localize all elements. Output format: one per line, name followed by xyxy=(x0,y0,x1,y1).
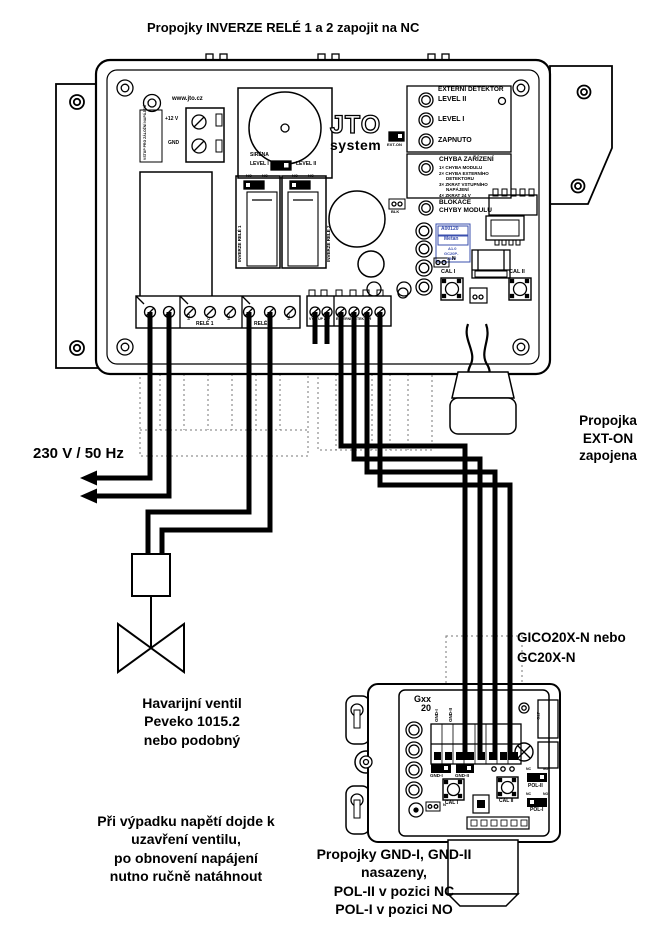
pol1-no-label: NO xyxy=(543,793,548,797)
siren-level1-label: LEVEL I xyxy=(250,162,269,167)
annotation-line: EXT-ON xyxy=(552,430,664,448)
status-panel-header: EXTERNÍ DETEKTOR xyxy=(438,87,504,94)
cal2-label: CAL II xyxy=(509,270,525,276)
vystup-terminal-label: VÝSTUP 24V xyxy=(309,318,330,322)
annotation-line: GICO20X-N nebo xyxy=(517,628,626,648)
detector-gnd2-label: GND-II xyxy=(455,774,469,779)
wiring-diagram: Propojky INVERZE RELÉ 1 a 2 zapojit na N… xyxy=(0,0,669,941)
ghost-outline-right xyxy=(318,364,432,450)
extdet-terminal-label: EXTERNÍ DETEKTOR xyxy=(336,318,371,322)
pol2-no-label: NO xyxy=(543,768,548,772)
board-url: www.jto.cz xyxy=(172,96,203,102)
annotation-line: Propojky GND-I, GND-II xyxy=(283,845,505,863)
annotation-line: nasazeny, xyxy=(283,863,505,881)
annotation-line: Peveko 1015.2 xyxy=(92,712,292,730)
rele1-pin-label: C xyxy=(207,317,211,320)
led-level2-label: LEVEL II xyxy=(438,96,466,103)
annotation-line: POL-I v pozici NO xyxy=(283,900,505,918)
sticker-line1: A00120 xyxy=(441,227,459,232)
backup-input-label: VSTUP PRO ZÁLOŽNÍ NAPÁJENÍ xyxy=(144,105,148,160)
fault-line: 4× ZKRAT 24 V xyxy=(439,194,471,199)
rele1-pin-label: NO xyxy=(187,314,191,320)
annotation-line: GC20X-N xyxy=(517,648,626,668)
pol2-nc-label: NC xyxy=(526,768,531,772)
annotation-line: Havarijní ventil xyxy=(92,694,292,712)
blk-label: BLK xyxy=(391,210,399,214)
annotation-line: nebo podobný xyxy=(92,731,292,749)
sticker-line2: Metan xyxy=(444,237,458,242)
pol2-label: POL-II xyxy=(528,784,543,789)
annotation-line: zapojena xyxy=(552,447,664,465)
relay1-no-label: NO xyxy=(246,174,252,178)
annotation-line: Propojka xyxy=(552,412,664,430)
detector-gnd2-vertical: GND-II xyxy=(449,708,454,722)
ghost-outline-left xyxy=(140,364,308,456)
block-label-1: BLOKACE xyxy=(439,200,471,207)
pol1-label: POL-I xyxy=(530,808,543,813)
gico-annotation: GICO20X-N nebo GC20X-N xyxy=(517,628,626,667)
jto-logo-sub: system xyxy=(330,138,381,153)
right-bracket xyxy=(550,66,612,204)
detector-gnd1-label: GND-I xyxy=(430,774,443,779)
ghost-outline-cable xyxy=(446,636,522,686)
detector-cal2-label: CAL II xyxy=(499,799,513,804)
detector-side-text: JTO xyxy=(536,712,540,720)
left-bracket xyxy=(56,84,98,368)
detector-gnd1-vertical: GND-I xyxy=(435,709,440,722)
annotation-line: Při výpadku napětí dojde k xyxy=(38,812,334,830)
rele2-pin-label: NC xyxy=(287,314,291,320)
jumpers-annotation: Propojky GND-I, GND-II nasazeny, POL-II … xyxy=(283,845,505,919)
rele1-terminal-label: RELÉ 1 xyxy=(196,322,214,327)
led-on-label: ZAPNUTO xyxy=(438,137,472,144)
valve-annotation: Havarijní ventil Peveko 1015.2 nebo podo… xyxy=(92,694,292,749)
ext-on-jumper-label: EXT-ON xyxy=(387,143,402,147)
detector-n-label: N xyxy=(443,803,446,807)
block-label-2: CHYBY MODULU xyxy=(439,208,492,215)
pol1-nc-label: NC xyxy=(526,793,531,797)
cal1-label: CAL I xyxy=(441,270,455,276)
mains-label: 230 V / 50 Hz xyxy=(33,446,124,462)
siren-label: SIRÉNA xyxy=(250,153,269,158)
relay2-no-label: NO xyxy=(292,174,298,178)
fault-header: CHYBA ZAŘÍZENÍ xyxy=(439,157,494,164)
led-level1-label: LEVEL I xyxy=(438,116,464,123)
ext-on-annotation: Propojka EXT-ON zapojena xyxy=(552,412,664,465)
rele1-pin-label: NC xyxy=(227,314,231,320)
relay2-vertical-label: INVERZE RELÉ 2 xyxy=(327,225,332,262)
n-jumper-label: N xyxy=(452,257,456,262)
relay1-nc-label: NC xyxy=(262,174,268,178)
gnd-label: GND xyxy=(168,141,179,146)
siren-level2-label: LEVEL II xyxy=(296,162,316,167)
relay1-vertical-label: INVERZE RELÉ 1 xyxy=(238,225,243,262)
rele2-terminal-label: RELÉ 2 xyxy=(254,322,272,327)
terminal-strip-left xyxy=(136,296,300,328)
jto-logo: JTO xyxy=(330,112,381,139)
detector-cal1-label: CAL I xyxy=(445,801,458,806)
plus12-label: +12 V xyxy=(165,117,178,122)
annotation-line: POL-II v pozici NC xyxy=(283,882,505,900)
detector-logo-2: 20 xyxy=(421,704,431,714)
relay2-nc-label: NC xyxy=(308,174,314,178)
diagram-title: Propojky INVERZE RELÉ 1 a 2 zapojit na N… xyxy=(147,21,419,35)
